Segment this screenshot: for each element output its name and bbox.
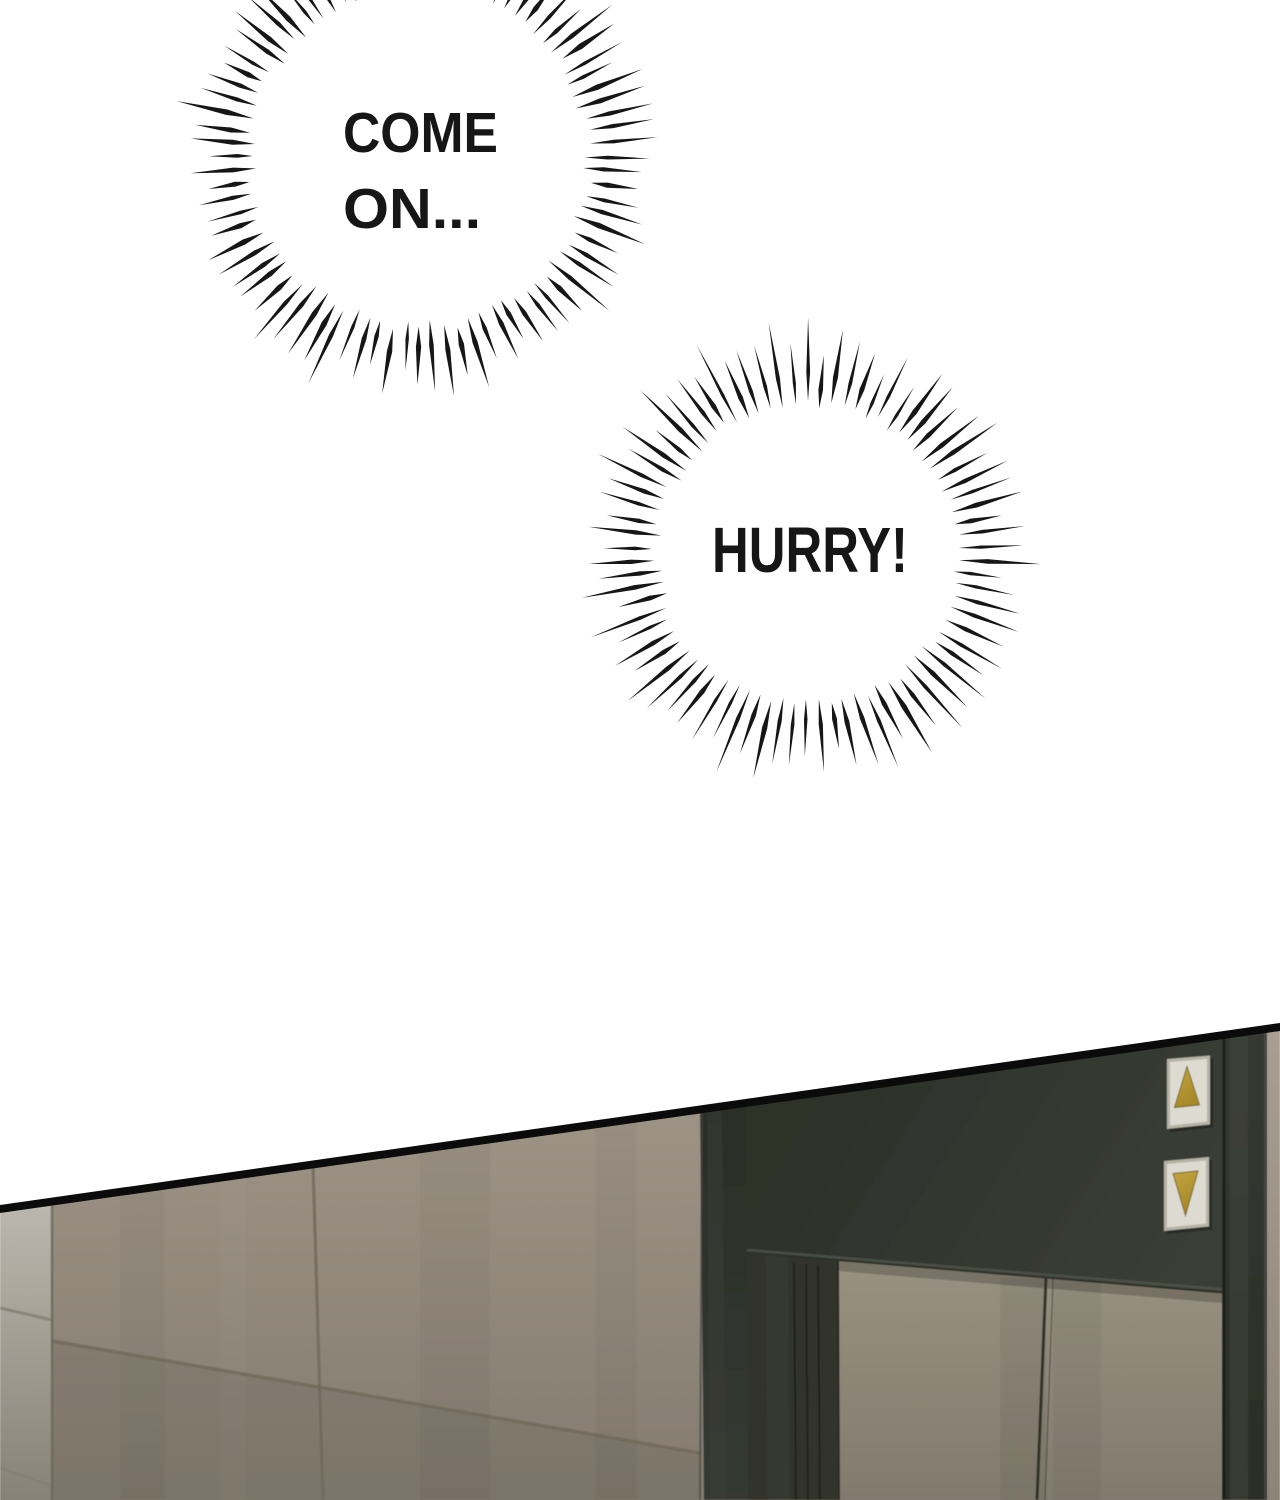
bubble-text-line: HURRY!	[712, 514, 908, 586]
speech-bubble-hurry: HURRY!	[582, 317, 1041, 778]
speech-bubble-come-on: COME ON...	[177, 0, 658, 396]
photo-grain	[0, 1018, 1280, 1500]
bubble-text-line: COME	[343, 101, 498, 165]
panel-canvas: COME ON... HURRY!	[0, 0, 1280, 1500]
elevator-photo-panel	[0, 1018, 1280, 1500]
webtoon-panel: COME ON... HURRY!	[0, 0, 1280, 1500]
bubble-text-line: ON...	[343, 177, 481, 241]
